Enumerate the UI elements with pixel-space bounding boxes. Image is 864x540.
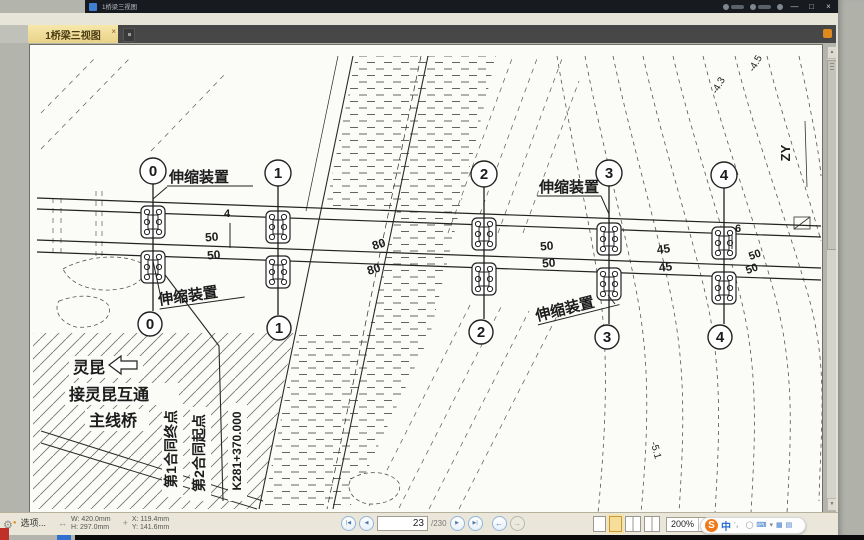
pier-label: 4 bbox=[716, 329, 725, 346]
page-navigation: |◀ ◀ 23 /230 ▶ ▶| ← → bbox=[341, 516, 525, 531]
joint-label-top-left: 伸缩装置 bbox=[168, 168, 229, 186]
dim-45: 45 bbox=[658, 259, 673, 275]
badge-text-blur bbox=[731, 5, 744, 9]
badge-icon bbox=[750, 4, 756, 10]
elevation-label: -4.3 bbox=[710, 75, 728, 96]
first-page-button[interactable]: |◀ bbox=[341, 516, 356, 531]
contract-notes: 第1合同终点 第2合同起点 K281+370.000 bbox=[162, 403, 247, 501]
statusbar-left: ⚙● 选项... ↔ W: 420.0mm H: 297.0mm + X: 11… bbox=[3, 515, 169, 535]
close-button[interactable]: × bbox=[823, 0, 834, 13]
mainline-label: 主线桥 bbox=[89, 411, 138, 430]
dim-50: 50 bbox=[205, 230, 220, 245]
prev-page-button[interactable]: ◀ bbox=[359, 516, 374, 531]
minimize-button[interactable]: — bbox=[789, 0, 800, 13]
single-page-icon[interactable] bbox=[593, 516, 606, 532]
bridge-plan-drawing: 0 1 2 3 4 0 1 2 3 bbox=[30, 45, 822, 513]
joint-label-bottom-right: 伸缩装置 bbox=[533, 293, 597, 325]
player-badge-2[interactable] bbox=[750, 4, 771, 10]
screen: 1桥梁三视图 — □ × 1桥梁三视图 × bbox=[0, 0, 864, 540]
stake-label: K281+370.000 bbox=[230, 411, 244, 490]
titlebar: 1桥梁三视图 — □ × bbox=[85, 0, 838, 13]
pier-label: 1 bbox=[274, 165, 282, 182]
maximize-button[interactable]: □ bbox=[806, 0, 817, 13]
joint-label-top-right: 伸缩装置 bbox=[538, 178, 599, 196]
pier-label: 2 bbox=[477, 324, 485, 341]
cursor-x: X: 119.4mm bbox=[132, 516, 169, 524]
cursor-y: Y: 141.6mm bbox=[132, 524, 169, 532]
lingkun-label: 灵昆 bbox=[73, 359, 105, 377]
dim-6: 6 bbox=[735, 223, 741, 235]
ime-punctuation-icon[interactable]: ’， bbox=[734, 518, 743, 533]
tab-close-icon[interactable]: × bbox=[111, 27, 116, 36]
contract1-label: 第1合同终点 bbox=[163, 410, 179, 488]
ime-caret-icon[interactable]: ▾ bbox=[770, 518, 774, 533]
tab-bridge-three-views[interactable]: 1桥梁三视图 × bbox=[28, 25, 118, 43]
history-back-button[interactable]: ← bbox=[492, 516, 507, 531]
next-page-button[interactable]: ▶ bbox=[450, 516, 465, 531]
contract2-label: 第2合同起点 bbox=[191, 414, 207, 492]
ime-logo-icon[interactable]: S bbox=[705, 519, 718, 532]
titlebar-right: — □ × bbox=[723, 0, 834, 13]
zy-label: ZY bbox=[778, 144, 793, 161]
app-icon bbox=[89, 3, 97, 11]
tab-label: 1桥梁三视图 bbox=[45, 27, 101, 42]
ime-toolbar: S 中 ’， ◯ ⌨ ▾ ▦ ▤ bbox=[700, 517, 806, 534]
desktop-background bbox=[838, 0, 864, 535]
ime-keyboard-icon[interactable]: ⌨ bbox=[756, 518, 766, 533]
road-embankment-ticks bbox=[263, 56, 496, 509]
pier-label: 3 bbox=[603, 329, 611, 346]
dim-50: 50 bbox=[207, 248, 222, 263]
tabbar-background bbox=[118, 25, 836, 43]
options-button[interactable]: 选项... bbox=[21, 515, 47, 532]
taskbar-app-icon[interactable] bbox=[57, 535, 71, 540]
page-size-readout: W: 420.0mm H: 297.0mm bbox=[71, 516, 111, 532]
ime-toolbox-icon[interactable]: ▦ bbox=[776, 518, 783, 533]
ime-mode-toggle[interactable]: 中 bbox=[721, 518, 731, 533]
culvert-symbol bbox=[794, 121, 810, 229]
pier-label: 2 bbox=[480, 166, 488, 183]
window-title: 1桥梁三视图 bbox=[102, 2, 137, 11]
ime-emoji-icon[interactable]: ◯ bbox=[746, 518, 754, 533]
taskbar bbox=[75, 535, 864, 540]
ime-skin-icon[interactable]: ▤ bbox=[786, 518, 793, 533]
taskbar-corner-icon[interactable] bbox=[0, 528, 9, 540]
dim-50: 50 bbox=[747, 247, 763, 262]
dim-50: 50 bbox=[540, 239, 555, 254]
page-size-icon: ↔ bbox=[58, 515, 67, 531]
page-number-input[interactable]: 23 bbox=[377, 516, 428, 531]
badge-icon bbox=[777, 4, 783, 10]
last-page-button[interactable]: ▶| bbox=[468, 516, 483, 531]
dim-4: 4 bbox=[224, 208, 231, 220]
dim-80: 80 bbox=[365, 260, 382, 278]
elevation-label: -5.1 bbox=[648, 441, 663, 461]
pier-label: 0 bbox=[146, 316, 154, 333]
pier-label: 3 bbox=[605, 165, 613, 182]
page-width: W: 420.0mm bbox=[71, 516, 111, 524]
badge-text-blur bbox=[758, 5, 771, 9]
dim-50: 50 bbox=[744, 261, 760, 276]
ramp-label: 接灵昆互通 bbox=[69, 385, 149, 404]
drawing-page[interactable]: 0 1 2 3 4 0 1 2 3 bbox=[29, 44, 823, 513]
pier-label: 0 bbox=[149, 163, 157, 180]
cursor-position-icon: + bbox=[123, 515, 128, 531]
dim-50: 50 bbox=[542, 256, 557, 271]
pier-label: 1 bbox=[275, 320, 283, 337]
tab-menu-button[interactable] bbox=[823, 29, 832, 38]
elevation-label: -4.5 bbox=[747, 53, 765, 74]
page-height: H: 297.0mm bbox=[71, 524, 111, 532]
player-badge-1[interactable] bbox=[723, 4, 744, 10]
tabbar: 1桥梁三视图 × bbox=[0, 25, 838, 43]
dim-80: 80 bbox=[370, 235, 387, 253]
badge-icon bbox=[723, 4, 729, 10]
viewer-canvas[interactable]: 0 1 2 3 4 0 1 2 3 bbox=[0, 43, 838, 512]
zoom-value: 200% bbox=[667, 518, 698, 531]
history-forward-button[interactable]: → bbox=[510, 516, 525, 531]
facing-pages-icon[interactable] bbox=[625, 516, 641, 532]
dim-45: 45 bbox=[656, 241, 671, 257]
new-tab-button[interactable] bbox=[123, 28, 135, 42]
player-badge-3[interactable] bbox=[777, 4, 783, 10]
page-total-label: /230 bbox=[431, 519, 447, 528]
pier-label: 4 bbox=[720, 167, 729, 184]
fit-width-icon[interactable] bbox=[609, 516, 622, 532]
cursor-position-readout: X: 119.4mm Y: 141.6mm bbox=[132, 516, 169, 532]
continuous-pages-icon[interactable] bbox=[644, 516, 660, 532]
